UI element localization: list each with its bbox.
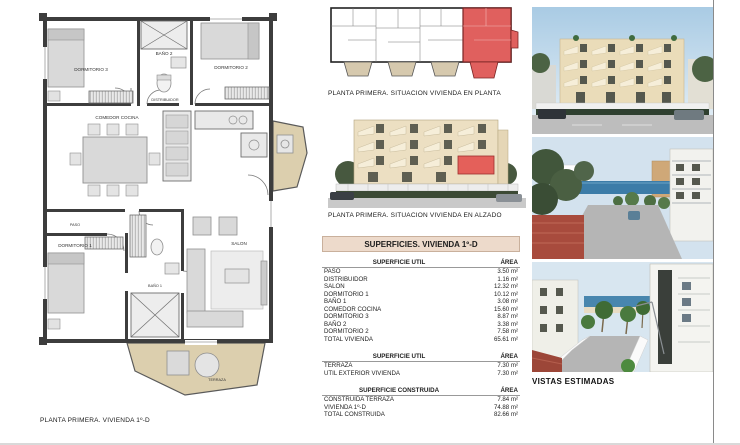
section-header-label: SUPERFICIE UTIL: [324, 259, 474, 266]
balconies: [344, 62, 498, 78]
table-row: TOTAL CONSTRUIDA82.66 m²: [322, 411, 520, 419]
table-row: UTIL EXTERIOR VIVIENDA7.30 m²: [322, 370, 520, 378]
row-value: 7.58 m²: [474, 328, 518, 336]
street-foreground: [532, 103, 713, 134]
row-value: 74.88 m²: [474, 404, 518, 412]
row-label: TOTAL CONSTRUIDA: [324, 411, 474, 419]
white-building-right: [650, 264, 713, 372]
section-header-label: SUPERFICIE UTIL: [324, 353, 474, 360]
table-section-construida: SUPERFICIE CONSTRUIDA ÁREA CONSTRUIDA TE…: [322, 386, 520, 419]
section-header-area: ÁREA: [474, 387, 518, 394]
row-label: TOTAL VIVIENDA: [324, 336, 474, 344]
row-value: 12.32 m²: [474, 283, 518, 291]
row-label: BAÑO 2: [324, 321, 474, 329]
table-row: DORMITORIO 38.87 m²: [322, 313, 520, 321]
row-label: DORMITORIO 2: [324, 328, 474, 336]
row-value: 65.61 m²: [474, 336, 518, 344]
table-row: SALON12.32 m²: [322, 283, 520, 291]
car: [330, 192, 354, 200]
elevation-caption: PLANTA PRIMERA. SITUACION VIVIENDA EN AL…: [328, 212, 502, 219]
row-value: 10.12 m²: [474, 291, 518, 299]
room-label-terraza: TERRAZA: [208, 378, 226, 382]
table-row: VIVIENDA 1º-D74.88 m²: [322, 404, 520, 412]
section-header-label: SUPERFICIE CONSTRUIDA: [324, 387, 474, 394]
row-label: COMEDOR COCINA: [324, 306, 474, 314]
surfaces-table-title: SUPERFICIES. VIVIENDA 1º-D: [322, 236, 520, 252]
table-row: PASO3.50 m²: [322, 268, 520, 276]
room-label-dormitorio1: DORMITORIO 1: [58, 243, 92, 248]
row-label: BAÑO 1: [324, 298, 474, 306]
vistas-estimadas-label: VISTAS ESTIMADAS: [532, 377, 614, 386]
row-label: TERRAZA: [324, 362, 474, 370]
room-label-dormitorio2: DORMITORIO 2: [214, 65, 248, 70]
table-section-header: SUPERFICIE CONSTRUIDA ÁREA: [322, 386, 520, 396]
room-label-bano2: BAÑO 2: [156, 50, 173, 56]
room-label-bano1: BAÑO 1: [148, 283, 162, 288]
table-row: DORMITORIO 27.58 m²: [322, 328, 520, 336]
row-label: DISTRIBUIDOR: [324, 276, 474, 284]
row-value: 7.30 m²: [474, 362, 518, 370]
photo-street-sea-view: [532, 137, 713, 259]
row-label: CONSTRUIDA TERRAZA: [324, 396, 474, 404]
white-building-right: [670, 149, 713, 241]
table-section-header: SUPERFICIE UTIL ÁREA: [322, 258, 520, 268]
table-row: BAÑO 13.08 m²: [322, 298, 520, 306]
floor-plan-drawing: DORMITORIO 3 BAÑO 2 DORMITORIO 2 DISTRIB…: [35, 5, 320, 397]
situation-plan-drawing: [328, 6, 526, 86]
terrace-chair: [167, 351, 189, 375]
table-section-util-exterior: SUPERFICIE UTIL ÁREA TERRAZA7.30 m² UTIL…: [322, 352, 520, 377]
row-value: 7.30 m²: [474, 370, 518, 378]
table-row: COMEDOR COCINA15.60 m²: [322, 306, 520, 314]
street-foreground: [328, 184, 526, 208]
floor-plan-caption: PLANTA PRIMERA. VIVIENDA 1º-D: [40, 417, 150, 424]
table-row: TERRAZA7.30 m²: [322, 362, 520, 370]
car: [496, 194, 522, 202]
situation-plan-caption: PLANTA PRIMERA. SITUACION VIVIENDA EN PL…: [328, 90, 501, 97]
side-balcony-area: [273, 121, 307, 191]
highlighted-unit-overlay: [458, 156, 494, 174]
terraza-area: [127, 343, 265, 395]
row-value: 82.66 m²: [474, 411, 518, 419]
terrace-table: [195, 353, 219, 377]
table-row: TOTAL VIVIENDA65.61 m²: [322, 336, 520, 344]
row-label: DORMITORIO 3: [324, 313, 474, 321]
room-label-dormitorio3: DORMITORIO 3: [74, 67, 108, 72]
page-border-line: [713, 0, 714, 445]
building-facade: [560, 35, 684, 105]
section-header-area: ÁREA: [474, 259, 518, 266]
elevation-render: [328, 102, 526, 208]
row-value: 7.84 m²: [474, 396, 518, 404]
row-value: 3.50 m²: [474, 268, 518, 276]
table-row: BAÑO 23.38 m²: [322, 321, 520, 329]
row-label: UTIL EXTERIOR VIVIENDA: [324, 370, 474, 378]
row-value: 8.87 m²: [474, 313, 518, 321]
room-label-paso: PASO: [70, 223, 80, 227]
car: [538, 109, 566, 119]
room-label-salon: SALON: [231, 241, 247, 246]
car: [628, 211, 640, 220]
table-section-header: SUPERFICIE UTIL ÁREA: [322, 352, 520, 362]
table-row: DORMITORIO 110.12 m²: [322, 291, 520, 299]
row-label: PASO: [324, 268, 474, 276]
row-value: 15.60 m²: [474, 306, 518, 314]
photo-building-render: [532, 7, 713, 134]
room-label-distribuidor: DISTRIBUIDOR: [151, 98, 178, 102]
table-row: CONSTRUIDA TERRAZA7.84 m²: [322, 396, 520, 404]
brochure-page: DORMITORIO 3 BAÑO 2 DORMITORIO 2 DISTRIB…: [0, 0, 740, 445]
photo-road-sea-view: [532, 262, 713, 372]
row-value: 3.08 m²: [474, 298, 518, 306]
highlighted-unit: [463, 8, 518, 62]
row-value: 1.16 m²: [474, 276, 518, 284]
room-label-comedor-cocina: COMEDOR COCINA: [95, 115, 139, 120]
table-section-util: SUPERFICIE UTIL ÁREA PASO3.50 m² DISTRIB…: [322, 258, 520, 343]
row-label: VIVIENDA 1º-D: [324, 404, 474, 412]
table-row: DISTRIBUIDOR1.16 m²: [322, 276, 520, 284]
red-terrace: [532, 215, 584, 259]
car: [674, 110, 704, 120]
section-header-area: ÁREA: [474, 353, 518, 360]
surfaces-table: SUPERFICIES. VIVIENDA 1º-D SUPERFICIE UT…: [322, 236, 520, 419]
row-value: 3.38 m²: [474, 321, 518, 329]
row-label: SALON: [324, 283, 474, 291]
row-label: DORMITORIO 1: [324, 291, 474, 299]
